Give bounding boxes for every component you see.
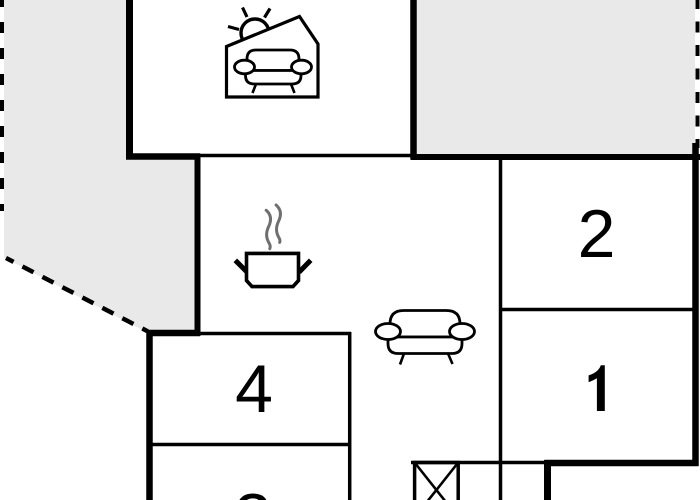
- svg-text:4: 4: [235, 351, 273, 427]
- svg-text:2: 2: [578, 196, 616, 272]
- svg-text:3: 3: [234, 480, 272, 500]
